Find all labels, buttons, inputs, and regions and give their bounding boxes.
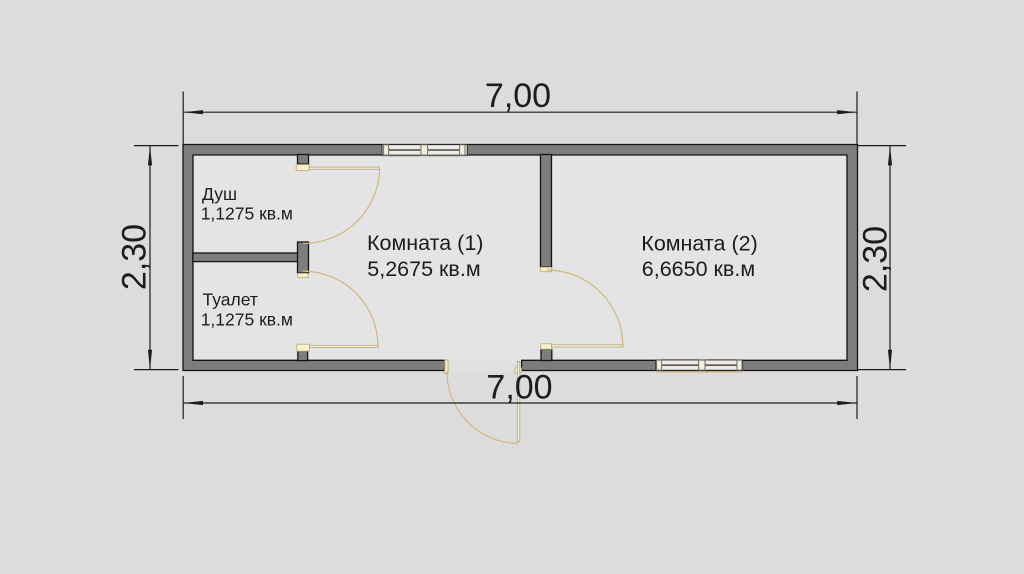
svg-text:2,30: 2,30 bbox=[857, 226, 895, 292]
svg-text:2,30: 2,30 bbox=[116, 224, 154, 290]
svg-text:1,1275 кв.м: 1,1275 кв.м bbox=[201, 204, 293, 224]
svg-text:5,2675 кв.м: 5,2675 кв.м bbox=[367, 257, 480, 281]
svg-text:1,1275 кв.м: 1,1275 кв.м bbox=[201, 309, 293, 329]
svg-text:Комната (2): Комната (2) bbox=[641, 232, 757, 256]
svg-text:Туалет: Туалет bbox=[203, 290, 258, 310]
svg-text:7,00: 7,00 bbox=[486, 369, 552, 407]
svg-text:Комната (1): Комната (1) bbox=[367, 231, 483, 255]
svg-text:Душ: Душ bbox=[202, 184, 237, 204]
svg-text:6,6650 кв.м: 6,6650 кв.м bbox=[642, 257, 755, 281]
svg-text:7,00: 7,00 bbox=[485, 77, 551, 115]
